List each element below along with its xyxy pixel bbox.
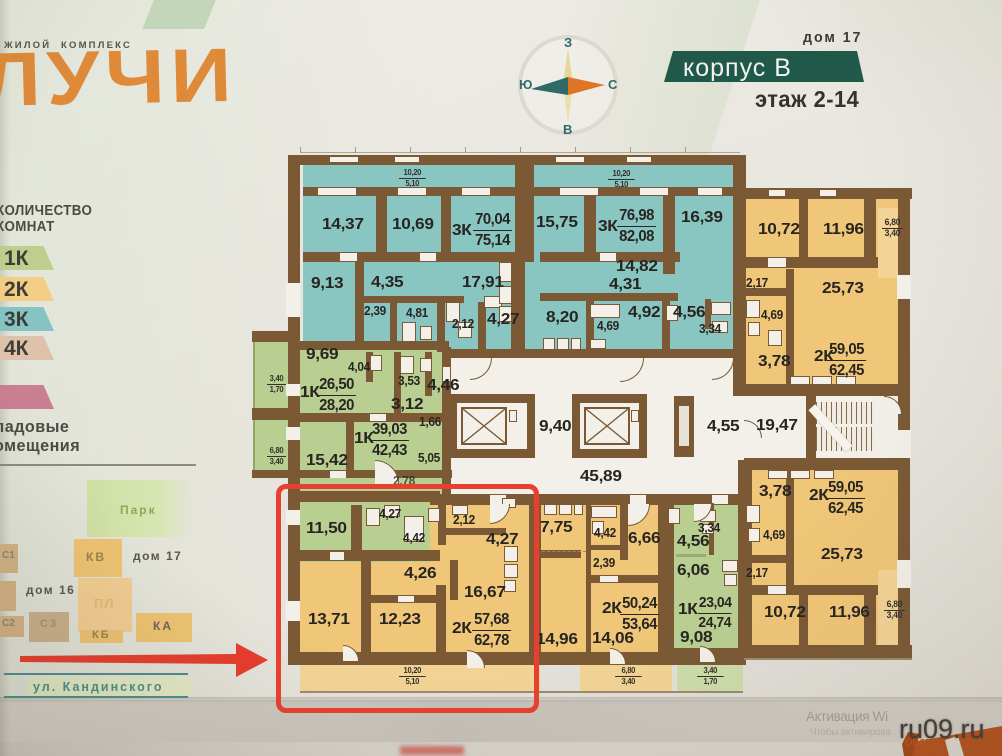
svg-text:В: В <box>563 122 572 135</box>
svg-text:С: С <box>608 77 618 92</box>
svg-text:З: З <box>564 35 572 50</box>
svg-text:Ю: Ю <box>519 77 532 92</box>
